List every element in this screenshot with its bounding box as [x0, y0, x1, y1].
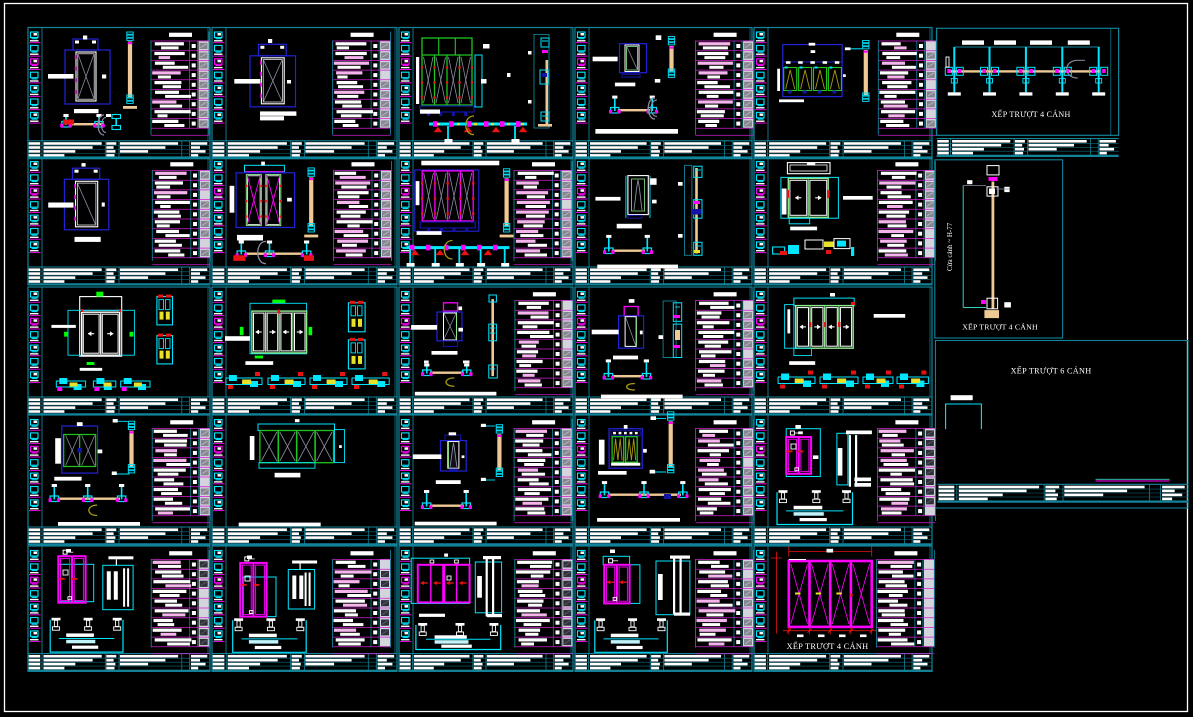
svg-text:XẾP TRƯỢT 4 CÁNH: XẾP TRƯỢT 4 CÁNH — [991, 109, 1070, 119]
svg-text:XẾP TRƯỢT 4 CÁNH: XẾP TRƯỢT 4 CÁNH — [787, 641, 869, 651]
svg-text:Cửa cánh ~ H-77: Cửa cánh ~ H-77 — [946, 222, 954, 271]
svg-text:XẾP TRƯỢT 6 CÁNH: XẾP TRƯỢT 6 CÁNH — [1011, 366, 1092, 376]
svg-text:XẾP TRƯỢT 4 CÁNH: XẾP TRƯỢT 4 CÁNH — [962, 322, 1038, 332]
